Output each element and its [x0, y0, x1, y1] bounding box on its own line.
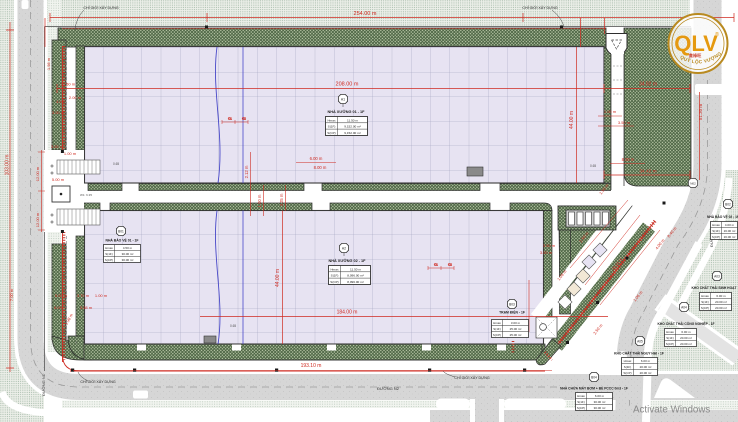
svg-text:6.00 m: 6.00 m	[595, 394, 605, 398]
svg-text:34.42 m: 34.42 m	[639, 169, 656, 175]
svg-text:S(1F): S(1F)	[328, 125, 336, 129]
svg-text:20.00 m²: 20.00 m²	[680, 342, 692, 346]
svg-text:B02: B02	[725, 202, 731, 206]
svg-text:0.65: 0.65	[590, 164, 596, 168]
svg-text:6.00 m: 6.00 m	[681, 330, 691, 334]
svg-text:CHỈ GIỚI XÂY DỰNG: CHỈ GIỚI XÂY DỰNG	[83, 5, 118, 10]
svg-text:1.00 m: 1.00 m	[64, 151, 77, 156]
svg-text:Hmax: Hmax	[493, 321, 501, 325]
svg-text:44.00 m: 44.00 m	[275, 269, 281, 287]
svg-text:3.00 m: 3.00 m	[51, 144, 64, 149]
svg-text:3.70 m: 3.70 m	[77, 293, 90, 298]
svg-text:NHÀ CHỨA MÁY BƠM + BỂ PCCC 0m3: NHÀ CHỨA MÁY BƠM + BỂ PCCC 0m3 - 1F	[560, 386, 628, 391]
svg-text:1.00 m: 1.00 m	[604, 109, 617, 114]
svg-text:S(CP): S(CP)	[493, 333, 501, 337]
svg-text:Hmax: Hmax	[712, 223, 720, 227]
svg-text:CHỈ GIỚI XÂY DỰNG: CHỈ GIỚI XÂY DỰNG	[454, 375, 489, 380]
svg-text:Hmax: Hmax	[577, 394, 585, 398]
svg-text:A05: A05	[637, 339, 643, 343]
svg-text:S(1F): S(1F)	[105, 252, 113, 256]
svg-text:9,152.00 m²: 9,152.00 m²	[344, 125, 361, 129]
svg-text:B01: B01	[118, 229, 124, 233]
svg-text:Hmax: Hmax	[666, 330, 674, 334]
svg-text:1.00 m: 1.00 m	[257, 194, 262, 207]
svg-text:8.00: 8.00	[54, 305, 63, 310]
svg-text:NHÀ XƯỞNG 02 - 1F: NHÀ XƯỞNG 02 - 1F	[329, 258, 367, 263]
svg-text:C1: C1	[434, 263, 438, 267]
svg-text:S(1F): S(1F)	[701, 300, 709, 304]
svg-text:S(CP): S(CP)	[701, 306, 709, 310]
svg-text:11.50 m: 11.50 m	[350, 267, 361, 271]
svg-text:1.98 m: 1.98 m	[46, 57, 51, 70]
svg-text:A2: A2	[342, 246, 346, 250]
svg-text:S(CP): S(CP)	[666, 342, 674, 346]
svg-text:Hmax: Hmax	[105, 246, 113, 250]
svg-text:S(CP): S(CP)	[712, 235, 720, 239]
svg-text:20.00 m²: 20.00 m²	[640, 371, 652, 375]
svg-text:3.00 m: 3.00 m	[511, 321, 521, 325]
svg-text:3.25 m: 3.25 m	[279, 193, 284, 206]
svg-text:20.00 m²: 20.00 m²	[715, 306, 727, 310]
svg-text:A03: A03	[714, 274, 720, 278]
svg-text:30.00 m²: 30.00 m²	[594, 400, 606, 404]
svg-text:30.00 m²: 30.00 m²	[122, 258, 134, 262]
svg-text:208.00 m: 208.00 m	[336, 82, 359, 88]
svg-text:NHÀ BẢO VỆ 01 - 1F: NHÀ BẢO VỆ 01 - 1F	[106, 238, 139, 243]
svg-text:25.00 m²: 25.00 m²	[510, 327, 522, 331]
svg-text:3.00 m: 3.00 m	[540, 250, 553, 255]
svg-text:34.92 m: 34.92 m	[639, 82, 657, 88]
svg-text:S(CP): S(CP)	[577, 406, 585, 410]
svg-text:B03: B03	[509, 302, 515, 306]
svg-text:A04: A04	[681, 305, 687, 309]
svg-text:S(CP): S(CP)	[623, 371, 631, 375]
svg-text:25.00 m²: 25.00 m²	[510, 333, 522, 337]
svg-text:S(1F): S(1F)	[331, 274, 339, 278]
svg-text:16.00 m²: 16.00 m²	[724, 229, 736, 233]
svg-text:9,152.00 m²: 9,152.00 m²	[344, 131, 361, 135]
svg-text:S(1F): S(1F)	[493, 327, 501, 331]
svg-text:8,096.00 m²: 8,096.00 m²	[347, 274, 364, 278]
svg-text:S(1F): S(1F)	[666, 336, 674, 340]
svg-text:NHÀ XƯỞNG 01 - 1F: NHÀ XƯỞNG 01 - 1F	[328, 109, 366, 114]
svg-text:20.00 m²: 20.00 m²	[680, 336, 692, 340]
svg-text:CHỈ GIỚI XÂY DỰNG: CHỈ GIỚI XÂY DỰNG	[522, 5, 557, 10]
svg-text:S(1F): S(1F)	[712, 229, 720, 233]
svg-text:ĐƯỜNG N1: ĐƯỜNG N1	[41, 373, 46, 396]
svg-text:11.50 m: 11.50 m	[61, 82, 76, 87]
svg-text:30.00 m²: 30.00 m²	[594, 406, 606, 410]
svg-text:103.00 m: 103.00 m	[5, 155, 11, 176]
svg-text:Hmax: Hmax	[330, 267, 339, 271]
svg-text:4.00 m: 4.00 m	[725, 223, 735, 227]
svg-text:6.00 m: 6.00 m	[641, 359, 651, 363]
svg-text:Activate Windows: Activate Windows	[633, 405, 710, 416]
svg-text:S(CP): S(CP)	[105, 258, 113, 262]
svg-text:51.30 m: 51.30 m	[698, 104, 703, 121]
svg-text:KHO CHẤT THẢI NGUY HẠI - 1F: KHO CHẤT THẢI NGUY HẠI - 1F	[614, 351, 664, 356]
svg-text:2.12 m: 2.12 m	[244, 165, 249, 178]
svg-text:254.00 m: 254.00 m	[354, 11, 377, 17]
svg-text:1.00 m: 1.00 m	[95, 293, 108, 298]
svg-text:193.10 m: 193.10 m	[301, 363, 322, 369]
svg-text:12.00 m: 12.00 m	[35, 212, 40, 227]
svg-text:6.00 m: 6.00 m	[716, 294, 726, 298]
svg-text:3.50 m: 3.50 m	[618, 120, 631, 125]
svg-text:NHÀ BẢO VỆ 02 - 1F: NHÀ BẢO VỆ 02 - 1F	[707, 214, 738, 219]
svg-text:3.50 m: 3.50 m	[543, 243, 556, 248]
svg-text:0.65: 0.65	[113, 162, 119, 166]
svg-text:20.00 m²: 20.00 m²	[640, 365, 652, 369]
svg-text:C2: C2	[448, 263, 452, 267]
svg-text:2.00 m: 2.00 m	[69, 95, 82, 100]
svg-text:4.59: 4.59	[56, 99, 65, 104]
svg-text:TRẠM ĐIỆN - 1F: TRẠM ĐIỆN - 1F	[499, 310, 525, 315]
svg-text:C2: C2	[242, 117, 246, 121]
svg-text:N02: N02	[690, 181, 696, 185]
svg-text:8.00 m: 8.00 m	[314, 165, 327, 170]
svg-text:184.00 m: 184.00 m	[337, 310, 358, 316]
svg-text:S(CP): S(CP)	[327, 131, 335, 135]
svg-text:5.00 m: 5.00 m	[55, 293, 68, 298]
svg-text:ĐƯỜNG N2: ĐƯỜNG N2	[377, 386, 400, 391]
svg-text:0.65: 0.65	[230, 324, 236, 328]
svg-text:B04: B04	[591, 375, 597, 379]
svg-text:®: ®	[715, 31, 719, 38]
svg-text:KHO CHẤT THẢI CÔNG NGHIỆP - 1F: KHO CHẤT THẢI CÔNG NGHIỆP - 1F	[657, 321, 714, 326]
svg-text:16.00 m²: 16.00 m²	[724, 235, 736, 239]
svg-text:A1: A1	[341, 97, 345, 101]
svg-text:C1: C1	[228, 117, 232, 121]
svg-text:W1: 6.35: W1: 6.35	[80, 193, 92, 197]
svg-text:5.00 m: 5.00 m	[52, 177, 65, 182]
svg-text:3.58 m: 3.58 m	[80, 305, 93, 310]
svg-text:6.00 m: 6.00 m	[310, 156, 323, 161]
svg-text:S(CP): S(CP)	[330, 280, 338, 284]
svg-text:S(1F): S(1F)	[577, 400, 585, 404]
svg-text:3.00 m: 3.00 m	[52, 110, 65, 115]
svg-text:貴祿旺: 貴祿旺	[688, 52, 702, 59]
svg-text:44.00 m: 44.00 m	[569, 111, 575, 129]
svg-text:8,096.00 m²: 8,096.00 m²	[347, 280, 364, 284]
svg-text:Hmax: Hmax	[624, 359, 632, 363]
svg-text:20.00 m²: 20.00 m²	[715, 300, 727, 304]
svg-text:7.00 m: 7.00 m	[9, 288, 14, 301]
svg-text:KHO CHẤT THẢI SINH HOẠT: KHO CHẤT THẢI SINH HOẠT	[691, 285, 736, 290]
svg-text:30.00 m²: 30.00 m²	[122, 252, 134, 256]
svg-text:4.50 m: 4.50 m	[123, 246, 133, 250]
svg-text:Hmax: Hmax	[327, 118, 336, 122]
svg-text:11.50 m: 11.50 m	[347, 118, 358, 122]
svg-text:8.00 m: 8.00 m	[622, 157, 635, 162]
svg-text:Hmax: Hmax	[701, 294, 709, 298]
svg-text:12.00 m: 12.00 m	[35, 166, 40, 181]
svg-text:S(1F): S(1F)	[624, 365, 632, 369]
